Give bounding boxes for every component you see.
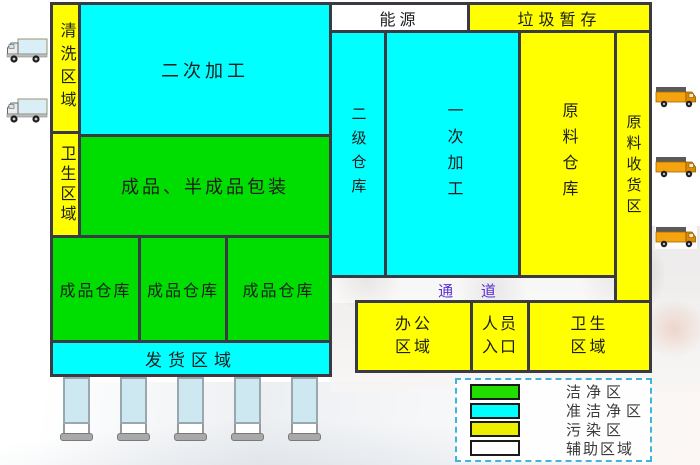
- clean-zone-swatch-icon: [470, 384, 520, 400]
- legend-row-clean: 洁净区: [457, 383, 650, 401]
- region-raw-material-warehouse: 原料仓库: [518, 30, 617, 278]
- region-label: 清洗区域: [54, 22, 78, 114]
- region-label: 原料收货区: [623, 114, 644, 219]
- region-primary-processing: 一次加工: [384, 30, 521, 278]
- region-label: 成品仓库: [59, 277, 131, 301]
- region-cleaning-area: 清洗区域: [50, 2, 81, 134]
- loading-dock-icon: [174, 377, 207, 441]
- dock-door: [120, 377, 147, 424]
- region-label: 二级仓库: [348, 106, 369, 202]
- semi-clean-zone-swatch-icon: [470, 403, 520, 419]
- facility-layout-slide: 清洗区域 二次加工 卫生区域 成品、半成品包装 成品仓库 成品仓库 成品仓库 发…: [0, 0, 700, 465]
- dock-door: [63, 377, 90, 424]
- dock-door: [291, 377, 318, 424]
- right-truck-icon: [654, 224, 698, 254]
- loading-dock-icon: [117, 377, 150, 441]
- region-garbage-temporary-storage: 垃圾暂存: [467, 2, 652, 33]
- region-label: 成品仓库: [242, 277, 314, 301]
- dock-base: [60, 433, 93, 441]
- region-label: 成品仓库: [147, 277, 219, 301]
- region-label: 二次加工: [161, 57, 249, 83]
- dock-base: [288, 433, 321, 441]
- label-line-1: 人员: [482, 314, 518, 337]
- label-line-2: 区域: [395, 337, 433, 360]
- loading-dock-icon: [288, 377, 321, 441]
- region-office-area: 办公 区域: [355, 300, 473, 373]
- label-line-2: 区域: [570, 337, 608, 360]
- region-label: 办公 区域: [395, 314, 433, 359]
- region-secondary-warehouse: 二级仓库: [329, 30, 387, 278]
- right-truck-icon: [654, 84, 698, 114]
- loading-dock-icon: [60, 377, 93, 441]
- region-secondary-processing: 二次加工: [78, 2, 332, 137]
- truck-icon: [654, 84, 698, 114]
- region-label: 卫生 区域: [570, 314, 608, 359]
- region-label: 能源: [379, 6, 419, 30]
- region-finished-semifinished-packaging: 成品、半成品包装: [78, 134, 332, 238]
- auxiliary-zone-swatch-icon: [470, 440, 520, 456]
- legend-label: 辅助区域: [566, 438, 634, 459]
- dock-base: [174, 433, 207, 441]
- region-label: 人员 入口: [482, 314, 518, 359]
- left-truck-icon: [5, 96, 49, 126]
- region-energy: 能源: [329, 2, 470, 33]
- region-sanitation-area-left: 卫生区域: [50, 131, 81, 238]
- region-shipping-area: 发货区域: [50, 340, 332, 377]
- zone-legend: 洁净区 准洁净区 污染区 辅助区域: [455, 378, 652, 462]
- truck-icon: [654, 154, 698, 184]
- legend-row-semi-clean: 准洁净区: [457, 402, 650, 420]
- region-label: 通 道: [438, 280, 508, 301]
- right-truck-icon: [654, 154, 698, 184]
- legend-row-auxiliary: 辅助区域: [457, 439, 650, 457]
- region-label: 成品、半成品包装: [121, 173, 289, 199]
- region-label: 原料仓库: [556, 102, 580, 206]
- dock-base: [117, 433, 150, 441]
- region-finished-goods-warehouse-3: 成品仓库: [225, 235, 332, 343]
- loading-dock-icon: [231, 377, 264, 441]
- region-personnel-entrance: 人员 入口: [470, 300, 530, 373]
- dock-door: [234, 377, 261, 424]
- label-line-1: 卫生: [570, 314, 608, 337]
- label-line-2: 入口: [482, 337, 518, 360]
- region-finished-goods-warehouse-2: 成品仓库: [138, 235, 228, 343]
- truck-icon: [654, 224, 698, 254]
- region-finished-goods-warehouse-1: 成品仓库: [50, 235, 141, 343]
- left-truck-icon: [5, 36, 49, 66]
- dock-door: [177, 377, 204, 424]
- region-raw-material-receiving: 原料收货区: [614, 30, 652, 303]
- region-label: 卫生区域: [54, 145, 78, 225]
- polluted-zone-swatch-icon: [470, 421, 520, 437]
- dock-base: [231, 433, 264, 441]
- legend-row-polluted: 污染区: [457, 420, 650, 438]
- truck-icon: [5, 36, 49, 66]
- region-label: 垃圾暂存: [517, 6, 601, 30]
- truck-icon: [5, 96, 49, 126]
- region-label: 发货区域: [145, 346, 237, 371]
- region-label: 一次加工: [441, 102, 465, 206]
- region-sanitation-area-right: 卫生 区域: [527, 300, 652, 373]
- label-line-1: 办公: [395, 314, 433, 337]
